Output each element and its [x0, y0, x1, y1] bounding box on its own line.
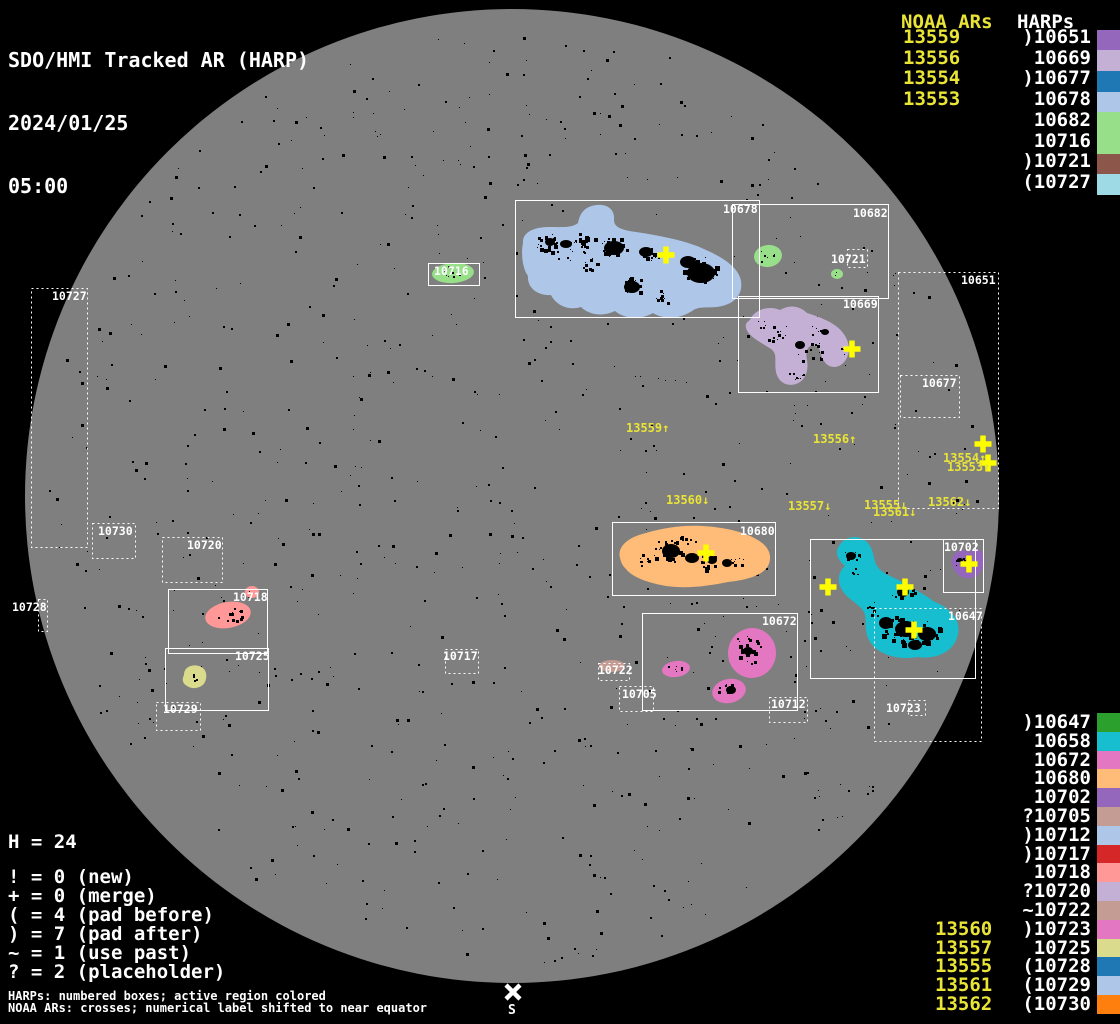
speckle — [894, 427, 896, 429]
sunspot-speckle — [538, 244, 539, 245]
speckle — [183, 557, 184, 558]
speckle — [407, 719, 410, 722]
speckle — [851, 412, 853, 414]
speckle — [800, 236, 801, 237]
harp-color-swatch — [1097, 939, 1120, 958]
speckle — [56, 498, 59, 501]
speckle — [550, 341, 552, 343]
sunspot-speckle — [743, 559, 744, 560]
sunspot-speckle — [240, 610, 243, 613]
sunspot-speckle — [754, 661, 757, 664]
sunspot-speckle — [554, 243, 557, 246]
speckle — [583, 785, 584, 786]
harp-color-swatch — [1097, 920, 1120, 939]
harp-color-swatch — [1097, 713, 1120, 732]
harp-number: (10727 — [1015, 172, 1091, 192]
speckle — [658, 378, 659, 379]
sunspot-speckle — [800, 378, 801, 379]
speckle — [790, 656, 792, 658]
speckle — [825, 720, 827, 722]
speckle — [502, 467, 504, 469]
sunspot-speckle — [810, 349, 812, 351]
speckle — [320, 127, 322, 129]
sunspot-speckle — [778, 334, 781, 337]
speckle — [473, 166, 475, 168]
speckle — [562, 837, 564, 839]
speckle — [512, 758, 514, 760]
harp-list-row: ~10722 — [935, 901, 1120, 920]
speckle — [720, 180, 723, 183]
speckle — [306, 427, 309, 430]
speckle — [817, 183, 819, 185]
sunspot-speckle — [647, 561, 648, 562]
sunspot-speckle — [586, 241, 588, 243]
speckle — [298, 778, 300, 780]
speckle — [761, 488, 763, 490]
speckle — [574, 948, 576, 950]
speckle — [451, 683, 453, 685]
speckle — [894, 285, 895, 286]
speckle — [109, 516, 111, 518]
sunspot-speckle — [819, 343, 820, 344]
sunspot-speckle — [648, 560, 651, 563]
speckle — [551, 204, 553, 206]
speckle — [627, 177, 628, 178]
harp-color-swatch — [1097, 788, 1120, 807]
speckle — [324, 829, 325, 830]
speckle — [219, 367, 222, 370]
speckle — [538, 320, 539, 321]
speckle — [84, 607, 86, 609]
speckle — [527, 163, 530, 166]
sunspot-speckle — [630, 292, 631, 293]
sunspot-speckle — [697, 264, 698, 265]
speckle — [297, 601, 298, 602]
speckle — [432, 376, 433, 377]
speckle — [423, 175, 424, 176]
sunspot-speckle — [580, 239, 582, 241]
speckle — [891, 521, 892, 522]
speckle — [650, 917, 652, 919]
speckle — [778, 604, 779, 605]
sunspot-speckle — [898, 619, 901, 622]
speckle — [437, 225, 438, 226]
sunspot-speckle — [646, 249, 647, 250]
sunspot-speckle — [585, 246, 586, 247]
sunspot-speckle — [841, 348, 843, 350]
sunspot-speckle — [666, 557, 670, 561]
sunspot-speckle — [936, 637, 939, 640]
sunspot-speckle — [821, 351, 824, 354]
speckle — [846, 646, 847, 647]
speckle — [99, 685, 101, 687]
sunspot-clump — [795, 341, 805, 349]
sunspot-speckle — [741, 564, 744, 567]
sunspot-speckle — [558, 258, 560, 260]
sunspot-speckle — [805, 350, 808, 353]
speckle — [630, 438, 632, 440]
sunspot-speckle — [674, 561, 676, 563]
sunspot-speckle — [659, 549, 660, 550]
speckle — [607, 323, 609, 325]
sunspot-speckle — [616, 253, 620, 257]
speckle — [795, 413, 796, 414]
sunspot-speckle — [719, 687, 721, 689]
speckle — [441, 713, 442, 714]
speckle — [628, 793, 631, 796]
speckle — [506, 73, 509, 76]
speckle — [680, 101, 683, 104]
speckle — [511, 535, 514, 538]
sunspot-speckle — [782, 337, 784, 339]
speckle — [820, 423, 822, 425]
harp-box-label-10720: 10720 — [187, 538, 222, 552]
harp-color-swatch — [1097, 976, 1120, 995]
speckle — [361, 467, 362, 468]
speckle — [353, 117, 354, 118]
speckle — [137, 702, 138, 703]
speckle — [528, 362, 531, 365]
speckle — [807, 772, 809, 774]
speckle — [259, 672, 260, 673]
speckle — [451, 314, 452, 315]
sunspot-speckle — [773, 337, 775, 339]
speckle — [488, 484, 490, 486]
speckle — [100, 712, 102, 714]
sunspot-speckle — [765, 325, 766, 326]
speckle — [659, 776, 660, 777]
speckle — [106, 379, 107, 380]
sunspot-speckle — [888, 623, 893, 628]
speckle — [281, 789, 284, 792]
speckle — [243, 563, 244, 564]
speckle — [294, 741, 295, 742]
speckle — [130, 743, 132, 745]
sunspot-speckle — [651, 257, 653, 259]
sunspot-speckle — [847, 558, 850, 561]
speckle — [523, 339, 525, 341]
speckle — [642, 859, 643, 860]
sunspot-speckle — [686, 261, 691, 266]
speckle — [156, 522, 157, 523]
sunspot-speckle — [646, 257, 647, 258]
speckle — [621, 795, 623, 797]
speckle — [586, 389, 587, 390]
speckle — [313, 855, 315, 857]
speckle — [654, 517, 657, 520]
speckle — [565, 138, 566, 139]
speckle — [394, 268, 395, 269]
speckle — [705, 914, 706, 915]
sunspot-speckle — [726, 684, 727, 685]
speckle — [465, 122, 466, 123]
sunspot-speckle — [903, 639, 904, 640]
harp-box-label-10730: 10730 — [98, 524, 133, 538]
speckle — [749, 768, 750, 769]
speckle — [691, 603, 693, 605]
speckle — [291, 679, 293, 681]
speckle — [359, 504, 361, 506]
speckle — [312, 710, 314, 712]
speckle — [669, 57, 671, 59]
sunspot-speckle — [585, 262, 586, 263]
sunspot-speckle — [664, 298, 665, 299]
speckle — [811, 622, 813, 624]
speckle — [822, 819, 824, 821]
speckle — [197, 577, 200, 580]
speckle — [371, 745, 373, 747]
speckle — [480, 430, 481, 431]
speckle — [353, 429, 354, 430]
speckle — [656, 450, 657, 451]
speckle — [438, 234, 439, 235]
speckle — [391, 477, 393, 479]
speckle — [194, 434, 196, 436]
speckle — [738, 520, 740, 522]
speckle — [880, 486, 883, 489]
sunspot-speckle — [734, 561, 735, 562]
speckle — [521, 691, 522, 692]
speckle — [526, 167, 528, 169]
sunspot-speckle — [856, 559, 858, 561]
speckle — [151, 689, 154, 692]
speckle — [546, 581, 547, 582]
noaa-ar-label: 13559↑ — [626, 421, 669, 435]
sunspot-speckle — [818, 331, 819, 332]
speckle — [785, 272, 787, 274]
speckle — [370, 440, 371, 441]
sunspot-speckle — [956, 560, 958, 562]
speckle — [378, 545, 380, 547]
speckle — [895, 424, 896, 425]
speckle — [212, 481, 213, 482]
speckle — [295, 251, 297, 253]
harp-color-swatch — [1097, 751, 1120, 770]
speckle — [59, 547, 60, 548]
speckle — [757, 194, 759, 196]
sunspot-speckle — [603, 250, 605, 252]
harp-box-label-10705: 10705 — [622, 687, 657, 701]
speckle — [839, 448, 841, 450]
speckle — [895, 273, 896, 274]
speckle — [438, 39, 439, 40]
harp-list-row: 13560)10723 — [935, 920, 1120, 939]
sunspot-speckle — [665, 541, 667, 543]
sunspot-speckle — [816, 328, 817, 329]
speckle — [452, 378, 455, 381]
sunspot-speckle — [725, 685, 727, 687]
harp-list-row: )10717 — [935, 845, 1120, 864]
sunspot-speckle — [552, 234, 553, 235]
speckle — [627, 724, 628, 725]
speckle — [545, 347, 547, 349]
speckle — [635, 376, 636, 377]
sunspot-speckle — [608, 238, 610, 240]
speckle — [340, 575, 341, 576]
sunspot-speckle — [796, 377, 798, 379]
sunspot-speckle — [705, 274, 707, 276]
speckle — [645, 502, 647, 504]
speckle — [383, 156, 386, 159]
harp-box-label-10712: 10712 — [771, 697, 806, 711]
speckle — [670, 603, 671, 604]
speckle — [786, 631, 787, 632]
speckle — [549, 154, 551, 156]
sunspot-speckle — [626, 249, 629, 252]
speckle — [499, 394, 500, 395]
sunspot-speckle — [609, 256, 610, 257]
speckle — [841, 287, 843, 289]
sunspot-speckle — [694, 258, 696, 260]
sunspot-speckle — [956, 565, 957, 566]
speckle — [484, 196, 487, 199]
speckle — [318, 671, 320, 673]
speckle — [128, 275, 130, 277]
speckle — [591, 70, 592, 71]
speckle — [424, 600, 426, 602]
speckle — [675, 725, 676, 726]
sunspot-speckle — [869, 606, 871, 608]
sunspot-speckle — [780, 331, 781, 332]
speckle — [255, 878, 258, 881]
speckle — [893, 275, 894, 276]
speckle — [888, 723, 890, 725]
speckle — [226, 659, 228, 661]
sunspot-speckle — [812, 326, 813, 327]
speckle — [723, 616, 724, 617]
speckle — [292, 826, 294, 828]
speckle — [820, 609, 823, 612]
speckle — [541, 380, 543, 382]
sunspot-speckle — [655, 557, 659, 561]
speckle — [504, 615, 506, 617]
speckle — [572, 363, 574, 365]
speckle — [807, 405, 808, 406]
speckle — [106, 710, 108, 712]
speckle — [610, 706, 613, 709]
speckle — [347, 828, 350, 831]
speckle — [295, 826, 296, 827]
sunspot-speckle — [666, 552, 667, 553]
sunspot-speckle — [768, 339, 771, 342]
speckle — [560, 121, 562, 123]
sunspot-speckle — [572, 251, 573, 252]
speckle — [387, 371, 390, 374]
harp-color-swatch — [1097, 957, 1120, 976]
speckle — [653, 885, 655, 887]
speckle — [457, 507, 458, 508]
speckle — [503, 775, 504, 776]
speckle — [202, 613, 204, 615]
sunspot-speckle — [663, 553, 667, 557]
speckle — [521, 135, 523, 137]
harp-number: )10721 — [1015, 151, 1091, 171]
speckle — [659, 830, 660, 831]
speckle — [867, 272, 868, 273]
sunspot-speckle — [621, 245, 622, 246]
sunspot-speckle — [585, 269, 588, 272]
speckle — [614, 366, 615, 367]
noaa-ar-label: 13557↓ — [788, 499, 831, 513]
harp-list-row: 10658 — [935, 732, 1120, 751]
speckle — [818, 790, 819, 791]
speckle — [867, 726, 870, 729]
sunspot-speckle — [596, 263, 599, 266]
sunspot-speckle — [218, 617, 220, 619]
harp-box-label-10651: 10651 — [961, 273, 996, 287]
sunspot-speckle — [760, 327, 762, 329]
speckle — [472, 681, 475, 684]
speckle — [587, 78, 589, 80]
speckle — [748, 822, 751, 825]
speckle — [718, 343, 719, 344]
sunspot-speckle — [555, 246, 556, 247]
sunspot-speckle — [643, 252, 644, 253]
sunspot-speckle — [633, 287, 634, 288]
speckle — [389, 91, 390, 92]
speckle — [313, 503, 314, 504]
sunspot-speckle — [241, 616, 244, 619]
speckle — [427, 826, 428, 827]
speckle — [489, 62, 490, 63]
speckle — [418, 84, 420, 86]
speckle — [711, 646, 713, 648]
sunspot-speckle — [914, 592, 917, 595]
speckle — [687, 797, 690, 800]
harp-box-label-10669: 10669 — [843, 297, 878, 311]
sunspot-speckle — [739, 656, 743, 660]
speckle — [238, 665, 239, 666]
speckle — [401, 799, 402, 800]
speckle — [318, 533, 321, 536]
speckle — [619, 408, 621, 410]
speckle — [139, 679, 140, 680]
speckle — [79, 371, 81, 373]
speckle — [579, 854, 582, 857]
speckle — [508, 751, 509, 752]
sunspot-speckle — [672, 558, 675, 561]
speckle — [608, 115, 611, 118]
speckle — [607, 596, 609, 598]
sunspot-speckle — [701, 268, 705, 272]
speckle — [354, 415, 355, 416]
speckle — [223, 600, 225, 602]
speckle — [693, 517, 695, 519]
sunspot-speckle — [747, 661, 748, 662]
sunspot-speckle — [668, 545, 670, 547]
speckle — [681, 134, 683, 136]
sunspot-speckle — [892, 639, 896, 643]
sunspot-speckle — [675, 669, 676, 670]
harp-color-swatch — [1097, 769, 1120, 788]
speckle — [164, 365, 167, 368]
speckle — [620, 450, 621, 451]
speckle — [472, 766, 475, 769]
speckle — [359, 397, 360, 398]
sunspot-speckle — [594, 238, 598, 242]
harp-color-swatch — [1097, 154, 1120, 175]
speckle — [350, 475, 351, 476]
speckle — [462, 422, 464, 424]
sunspot-speckle — [891, 619, 894, 622]
speckle — [747, 335, 750, 338]
harp-color-swatch — [1097, 174, 1120, 195]
speckle — [231, 328, 233, 330]
speckle — [360, 398, 363, 401]
sunspot-speckle — [585, 264, 588, 267]
sunspot-speckle — [756, 640, 759, 643]
speckle — [756, 606, 757, 607]
